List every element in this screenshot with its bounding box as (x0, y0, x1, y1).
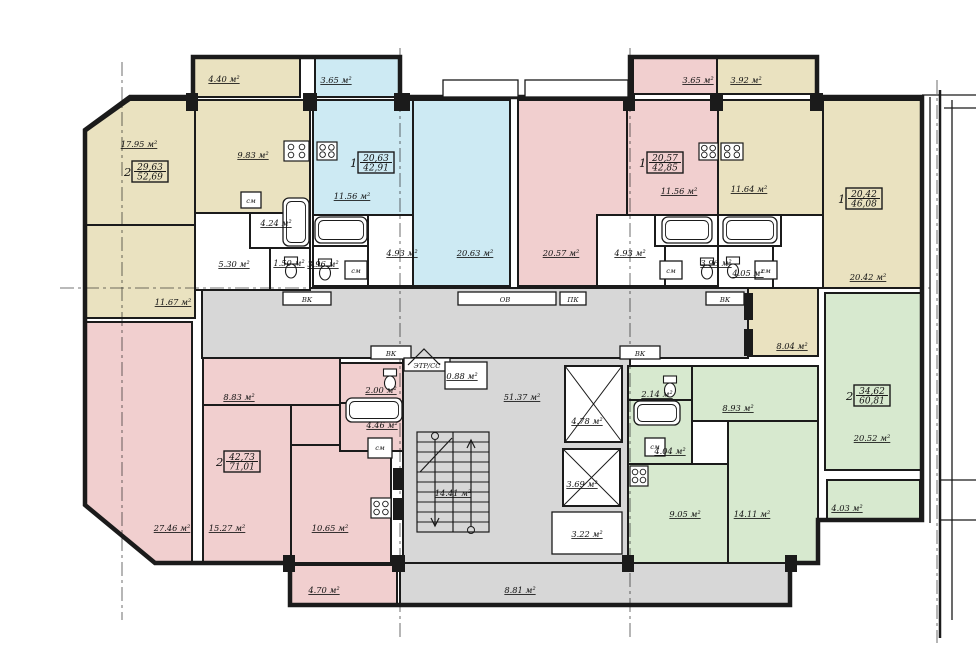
room-area-label: 8.93 м² (722, 403, 753, 413)
room-area-label: 3.96 м² (700, 258, 731, 268)
room-area-label: 3.92 м² (730, 75, 761, 85)
room-area-label: 8.83 м² (223, 392, 254, 402)
service-tag: ЭТР/СС (414, 362, 442, 370)
apt5-balcony-4-70 (290, 565, 397, 605)
room-area-label: 27.46 м² (153, 523, 191, 533)
room-area-label: 51.37 м² (504, 392, 541, 402)
room-area-label: 2.00 м² (364, 385, 396, 395)
room-area-label: 4.24 м² (259, 218, 291, 228)
wall-pier-1 (303, 93, 317, 111)
wall-pier-13 (393, 498, 402, 520)
room-area-label: 4.78 м² (570, 416, 602, 426)
service-tag: ВК (719, 296, 731, 304)
apartment-total-area: 42,85 (651, 164, 678, 174)
wall-pier-5 (810, 93, 823, 111)
room-area-label: 14.11 м² (734, 509, 771, 519)
apt5-room-15-27 (203, 405, 291, 563)
apt2-room-20-63 (413, 100, 510, 286)
wall-pier-7 (392, 555, 405, 572)
stove-icon-5 (630, 466, 648, 486)
service-tag: см (666, 267, 676, 275)
wall-pier-4 (710, 93, 723, 111)
apartment-total-area: 60,81 (859, 397, 885, 407)
stove-icon-0 (284, 141, 309, 161)
room-area-label: 5.30 м² (218, 259, 249, 269)
room-area-label: 14.41 м² (435, 488, 472, 498)
room-area-label: 15.27 м² (209, 523, 246, 533)
apartment-living-area: 42,73 (228, 453, 255, 463)
service-tag: ВК (634, 350, 646, 358)
room-area-label: 1.50 м² (273, 258, 304, 268)
service-tag: см (246, 197, 256, 205)
room-area-label: 3.22 м² (571, 529, 602, 539)
apt6-room-14-11 (728, 421, 818, 563)
room-area-label: 4.05 м² (731, 268, 763, 278)
room-area-label: 17.95 м² (121, 139, 158, 149)
wall-pier-2 (394, 93, 410, 111)
apartment-living-area: 20,57 (651, 154, 678, 164)
room-area-label: 20.63 м² (456, 248, 494, 258)
apartment-rooms-count: 1 (838, 192, 845, 206)
room-area-label: 2.14 м² (640, 389, 672, 399)
room-area-label: 8.81 м² (504, 585, 535, 595)
apt6-hall-8-93 (692, 366, 818, 421)
apartment-living-area: 20,42 (850, 190, 877, 200)
stove-icon-2 (699, 143, 718, 160)
apartment-total-area: 46,08 (850, 200, 877, 210)
wall-pier-12 (393, 468, 402, 490)
room-area-label: 4.93 м² (613, 248, 645, 258)
room-area-label: 0.88 м² (446, 371, 477, 381)
apartment-total-area: 71,01 (229, 463, 255, 473)
room-area-label: 9.05 м² (669, 509, 700, 519)
room-area-label: 3.96 м² (307, 259, 338, 269)
service-tag: см (375, 444, 385, 452)
service-tag: см (351, 267, 361, 275)
room-area-label: 20.52 м² (853, 433, 891, 443)
floor-plan-page: ВКОВПКВКВКВКЭТР/ССсмсмсмсмсмсм4.40 м²17.… (0, 0, 976, 646)
toilet-tank-icon-5 (664, 376, 677, 383)
apt5-hall-conn (291, 405, 340, 445)
apt6-room-20-52 (825, 293, 922, 470)
apartment-rooms-count: 2 (845, 389, 853, 403)
room-area-label: 20.57 м² (542, 248, 580, 258)
room-area-label: 4.04 м² (653, 446, 685, 456)
room-area-label: 9.83 м² (237, 150, 268, 160)
entry-porch-2 (525, 80, 628, 97)
service-tag: ВК (301, 296, 313, 304)
wall-pier-8 (622, 555, 634, 572)
room-area-label: 11.56 м² (334, 191, 371, 201)
loggia-8-81 (400, 563, 790, 605)
stove-icon-4 (371, 498, 391, 518)
apartment-living-area: 29,63 (136, 163, 163, 173)
room-area-label: 8.04 м² (776, 341, 807, 351)
room-area-label: 3.65 м² (320, 75, 351, 85)
room-area-label: 11.56 м² (661, 186, 698, 196)
stove-icon-3 (721, 143, 743, 160)
apartment-rooms-count: 1 (639, 156, 646, 170)
room-area-label: 20.42 м² (849, 272, 887, 282)
toilet-tank-icon-4 (384, 369, 397, 376)
apartment-rooms-count: 1 (350, 156, 357, 170)
room-area-label: 4.46 м² (365, 420, 397, 430)
apartment-total-area: 52,69 (137, 173, 163, 183)
service-tag: ОВ (500, 296, 511, 304)
stove-icon-1 (317, 142, 337, 160)
floor-plan-drawing: ВКОВПКВКВКВКЭТР/ССсмсмсмсмсмсм4.40 м²17.… (0, 0, 976, 646)
room-area-label: 4.03 м² (830, 503, 862, 513)
room-area-label: 4.70 м² (307, 585, 339, 595)
apartment-rooms-count: 2 (123, 165, 131, 179)
wall-pier-0 (186, 93, 198, 111)
entry-porch-1 (443, 80, 518, 97)
room-area-label: 11.67 м² (155, 297, 192, 307)
apartment-living-area: 20,63 (362, 154, 389, 164)
apt6-balcony-4-03 (827, 480, 920, 520)
service-tag: ПК (566, 296, 579, 304)
wall-pier-6 (283, 555, 295, 572)
apartment-living-area: 34,62 (859, 387, 885, 397)
service-tag: ВК (385, 350, 397, 358)
room-area-label: 4.40 м² (207, 74, 239, 84)
room-area-label: 3.65 м² (682, 75, 713, 85)
apartment-rooms-count: 2 (215, 455, 223, 469)
wall-pier-11 (744, 329, 753, 356)
wall-pier-10 (744, 293, 753, 320)
wall-pier-9 (785, 555, 797, 572)
apartment-total-area: 42,91 (362, 164, 389, 174)
room-area-label: 11.64 м² (731, 184, 768, 194)
room-area-label: 3.69 м² (566, 479, 597, 489)
room-area-label: 4.93 м² (385, 248, 417, 258)
room-area-label: 10.65 м² (312, 523, 349, 533)
